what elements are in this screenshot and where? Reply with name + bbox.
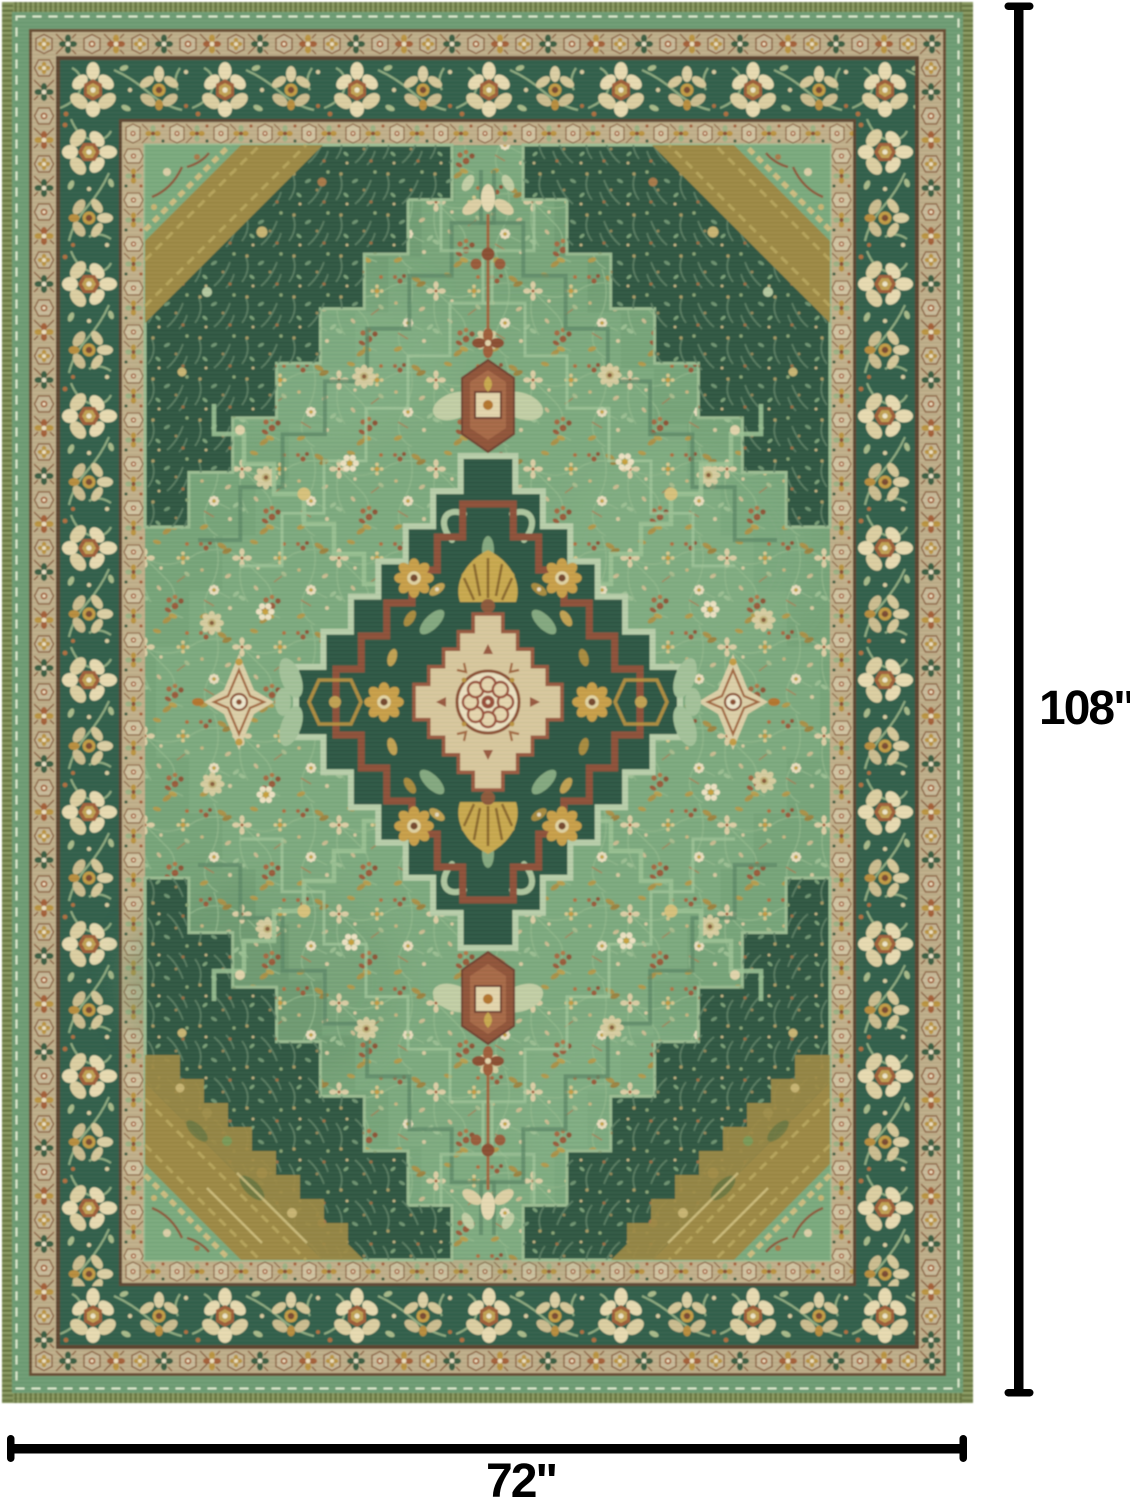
svg-text:108": 108" — [1039, 682, 1130, 735]
svg-text:72": 72" — [486, 1455, 556, 1500]
